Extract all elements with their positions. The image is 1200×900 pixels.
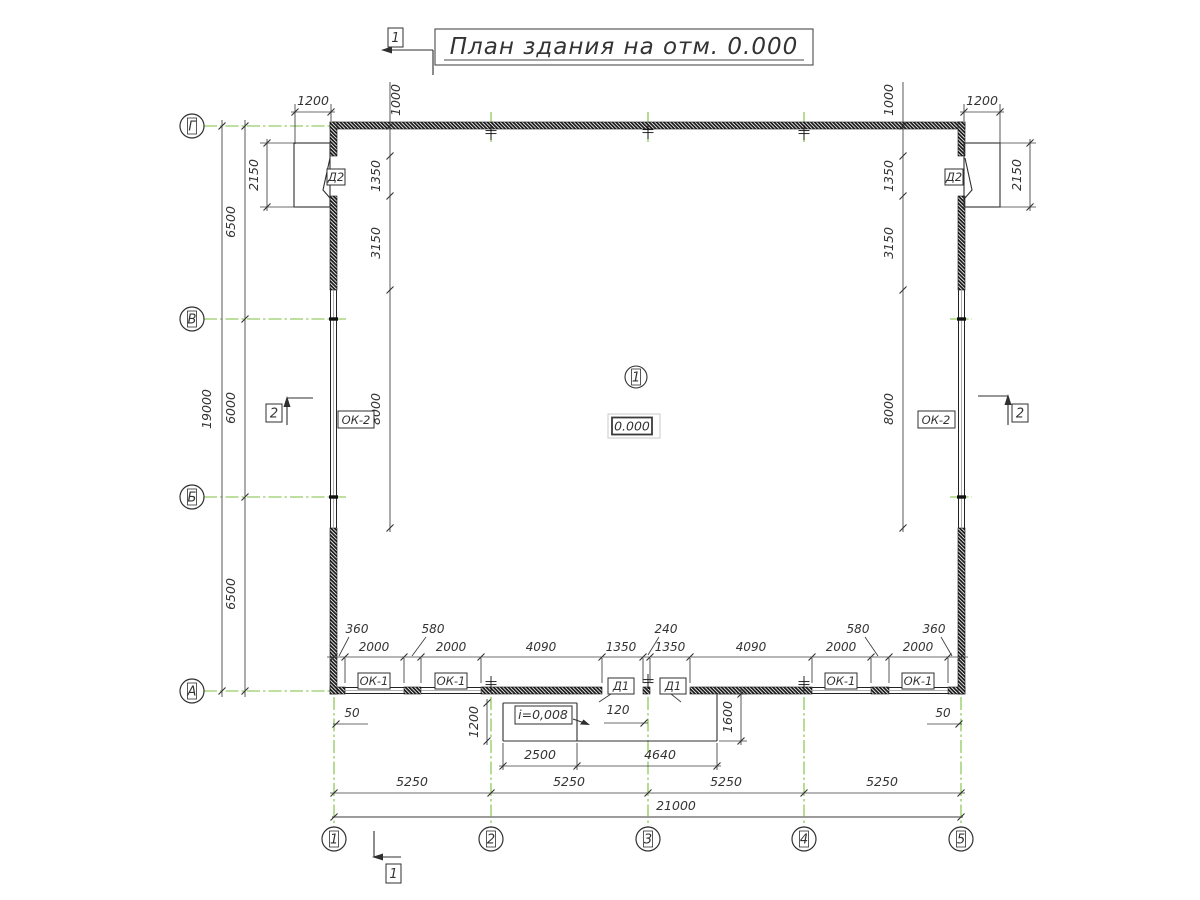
dim-porch-1600: 1600	[720, 701, 735, 733]
dim-120: 120	[607, 703, 630, 717]
elevation-value: 0.000	[614, 419, 650, 434]
section-mark-1-top: 1	[381, 28, 433, 75]
tag-ok2-right-label: ОК-2	[922, 413, 951, 427]
slope-annotation: i=0,008	[515, 706, 590, 725]
dim-580-r: 580	[847, 622, 870, 636]
dim-4090-l: 4090	[526, 640, 557, 654]
tag-ok2-left-label: ОК-2	[342, 413, 371, 427]
wall-left	[330, 122, 337, 156]
dim-bay-3: 5250	[710, 774, 742, 789]
wall-pier-axis3	[643, 687, 650, 694]
tag-d2-right-label: Д2	[945, 170, 962, 184]
door-d2-left-swing	[294, 143, 330, 207]
dim-1350-right: 1350	[881, 160, 896, 192]
tag-d1-left-label: Д1	[612, 679, 629, 693]
dim-2000-3: 2000	[826, 640, 857, 654]
dim-total-width: 21000	[656, 798, 696, 813]
section-1-bottom-label: 1	[389, 867, 397, 882]
dim-580-l: 580	[422, 622, 445, 636]
section-mark-2-left: 2	[266, 396, 313, 425]
dim-2000-2: 2000	[436, 640, 467, 654]
dim-1350-left: 1350	[368, 160, 383, 192]
section-2-right-label: 2	[1016, 407, 1024, 422]
dim-total-height: 19000	[199, 389, 214, 429]
elevation-mark: 0.000	[608, 414, 660, 438]
axis-letter-b: Б	[188, 491, 197, 506]
tag-ok1-2-label: ОК-1	[437, 674, 466, 688]
tag-ok1-1-label: ОК-1	[360, 674, 389, 688]
drawing-title: План здания на отм. 0.000	[450, 34, 799, 60]
dim-50-right: 50	[935, 706, 951, 720]
dim-1350-door-r: 1350	[655, 640, 686, 654]
dim-360-r: 360	[923, 622, 946, 636]
dim-1000-right: 1000	[881, 84, 896, 116]
window-ok2-right	[959, 290, 965, 528]
dim-50-left: 50	[344, 706, 360, 720]
dim-2000-4: 2000	[903, 640, 934, 654]
room-number-bubble: 1	[625, 366, 647, 388]
dim-porch-1200: 1200	[466, 706, 481, 738]
door-d1-leaders	[599, 694, 681, 702]
tag-ok1-4-label: ОК-1	[904, 674, 933, 688]
dim-2000-1: 2000	[359, 640, 390, 654]
dim-8000-right: 8000	[881, 393, 896, 425]
wall-top	[330, 122, 965, 129]
tag-ok1-3-label: ОК-1	[827, 674, 856, 688]
tag-d1-right-label: Д1	[664, 679, 681, 693]
room-number-label: 1	[632, 371, 640, 386]
tag-d2-left-label: Д2	[327, 170, 344, 184]
column-marks	[486, 124, 810, 691]
dim-2500: 2500	[524, 747, 556, 762]
dim-240: 240	[655, 622, 678, 636]
dim-4640: 4640	[644, 747, 676, 762]
dim-1200-left: 1200	[297, 93, 329, 108]
dim-bay-1: 5250	[396, 774, 428, 789]
section-2-left-label: 2	[270, 407, 278, 422]
axis-number-3: 3	[644, 833, 652, 848]
dim-row-vb: 6000	[223, 392, 238, 424]
section-mark-1-bottom: 1	[372, 831, 401, 883]
axis-number-2: 2	[487, 833, 495, 848]
floor-plan-drawing: План здания на отм. 0.000	[0, 0, 1200, 900]
axis-wall-ticks	[329, 317, 966, 498]
window-ok2-left	[331, 290, 337, 528]
section-1-top-label: 1	[391, 31, 399, 46]
axis-grid-lines	[204, 112, 972, 827]
dim-door2-height-right: 2150	[1009, 159, 1024, 191]
dim-3150-right: 3150	[881, 227, 896, 259]
exterior-walls	[330, 122, 965, 694]
axis-number-5: 5	[957, 833, 965, 848]
drawing-sheet: План здания на отм. 0.000	[0, 0, 1200, 900]
dim-3150-left: 3150	[368, 227, 383, 259]
section-mark-2-right: 2	[978, 394, 1028, 425]
axis-letter-v: В	[188, 313, 197, 328]
dim-1000-left: 1000	[388, 84, 403, 116]
dim-bay-2: 5250	[553, 774, 585, 789]
dim-360-l: 360	[346, 622, 369, 636]
axis-number-1: 1	[330, 833, 338, 848]
dim-door2-height-left: 2150	[246, 159, 261, 191]
axis-letter-a: А	[187, 685, 197, 700]
slope-label: i=0,008	[518, 707, 568, 722]
dim-lines-right	[903, 82, 1036, 532]
dim-1200-right: 1200	[966, 93, 998, 108]
dim-row-ba: 6500	[223, 578, 238, 610]
door-d2-right-swing	[964, 143, 1000, 207]
dim-1350-door-l: 1350	[606, 640, 637, 654]
axis-number-4: 4	[800, 833, 808, 848]
dim-4090-r: 4090	[736, 640, 767, 654]
title-block: План здания на отм. 0.000	[435, 29, 813, 65]
dim-bay-4: 5250	[866, 774, 898, 789]
dim-row-ga: 6500	[223, 206, 238, 238]
